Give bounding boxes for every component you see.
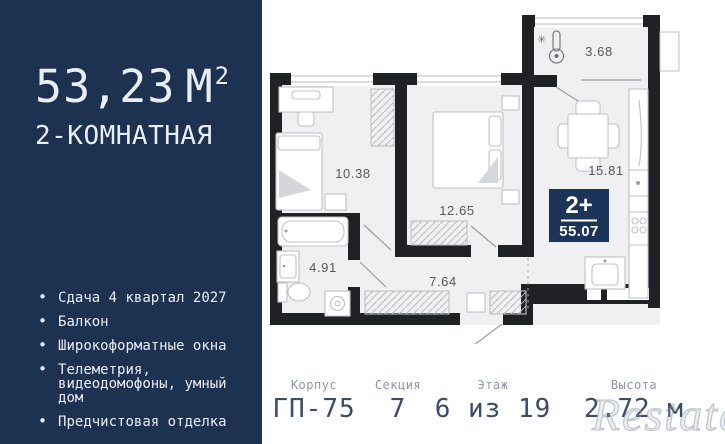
detail-label: Корпус — [266, 378, 362, 392]
detail-label: Этаж — [430, 378, 556, 392]
feature-item: •Широкоформатные окна — [38, 339, 248, 353]
bedroom1-area-label: 10.38 — [335, 166, 371, 181]
exterior-shaft-box — [660, 32, 679, 71]
bullet-icon: • — [38, 339, 47, 353]
bathroom-area-label: 4.91 — [309, 260, 337, 275]
feature-item: •Телеметрия, видеодомофоны, умный дом — [38, 363, 248, 405]
left-info-panel: 53,23М2 2-КОМНАТНАЯ •Сдача 4 квартал 202… — [0, 0, 262, 444]
detail-value: ГП-75 — [266, 394, 362, 424]
bullet-icon: • — [38, 315, 47, 329]
apartment-badge: 2+ 55.07 — [549, 189, 609, 242]
snowflake-icon: ✳ — [537, 34, 546, 46]
watermark: Restate — [592, 388, 725, 441]
feature-text: Предчистовая отделка — [58, 415, 227, 429]
feature-item: •Сдача 4 квартал 2027 — [38, 291, 248, 305]
badge-rooms-label: 2+ — [565, 192, 592, 219]
apartment-area-title: 53,23М2 — [35, 60, 230, 113]
feature-text: Телеметрия, видеодомофоны, умный дом — [58, 363, 227, 405]
area-sup: 2 — [215, 62, 230, 90]
hallway-furniture — [365, 291, 526, 314]
detail-section: Секция 7 — [366, 378, 430, 424]
kitchen-area-label: 15.81 — [588, 163, 624, 178]
detail-building: Корпус ГП-75 — [266, 378, 362, 424]
feature-text: Сдача 4 квартал 2027 — [58, 291, 227, 305]
features-list: •Сдача 4 квартал 2027 •Балкон •Широкофор… — [38, 291, 248, 439]
floor-plan: ✳ 3.68 10.38 12.65 15.81 4.91 7.64 2+ 55… — [265, 0, 725, 344]
detail-value: 6 из 19 — [430, 394, 556, 424]
feature-item: •Балкон — [38, 315, 248, 329]
feature-item: •Предчистовая отделка — [38, 415, 248, 429]
detail-floor: Этаж 6 из 19 — [430, 378, 556, 424]
bullet-icon: • — [38, 415, 47, 429]
area-unit: М — [185, 60, 213, 113]
area-value: 53,23 — [35, 60, 175, 113]
badge-total-area: 55.07 — [559, 223, 599, 240]
floor-plan-drawing: ✳ 3.68 10.38 12.65 15.81 4.91 7.64 2+ 55… — [265, 0, 725, 344]
real-estate-flyer: 53,23М2 2-КОМНАТНАЯ •Сдача 4 квартал 202… — [0, 0, 725, 444]
balcony-area-label: 3.68 — [585, 44, 613, 59]
bullet-icon: • — [38, 363, 47, 405]
bedroom2-area-label: 12.65 — [439, 203, 475, 218]
detail-value: 7 — [366, 394, 430, 424]
feature-text: Балкон — [58, 315, 109, 329]
hallway-area-label: 7.64 — [429, 274, 457, 289]
bullet-icon: • — [38, 291, 47, 305]
feature-text: Широкоформатные окна — [58, 339, 227, 353]
apartment-type-label: 2-КОМНАТНАЯ — [35, 121, 213, 151]
detail-label: Секция — [366, 378, 430, 392]
